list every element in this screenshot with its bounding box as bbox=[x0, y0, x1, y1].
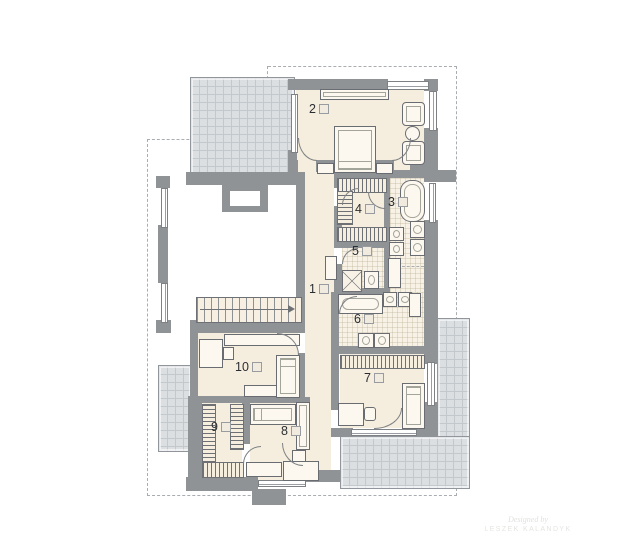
bed bbox=[276, 355, 300, 398]
wall bbox=[296, 172, 305, 300]
room-number: 9 bbox=[211, 421, 218, 434]
cabinet bbox=[388, 258, 401, 288]
room-area-marker bbox=[365, 204, 375, 214]
room-label-5: 5 bbox=[352, 245, 372, 258]
toilet-icon bbox=[389, 227, 404, 241]
nightstand bbox=[376, 163, 393, 174]
room-number: 4 bbox=[355, 203, 362, 216]
bidet-icon bbox=[389, 242, 404, 256]
room-area-marker bbox=[374, 373, 384, 383]
room-label-10: 10 bbox=[235, 361, 262, 374]
window bbox=[351, 429, 417, 436]
wall bbox=[186, 172, 298, 185]
wall bbox=[156, 176, 170, 188]
wall bbox=[288, 160, 298, 172]
balcony-door-window bbox=[291, 94, 298, 153]
room-label-6: 6 bbox=[354, 313, 374, 326]
window bbox=[258, 480, 306, 487]
wardrobe-shelving bbox=[230, 404, 244, 450]
terrace-top-left bbox=[190, 77, 295, 175]
stool bbox=[223, 347, 234, 360]
room-number: 3 bbox=[388, 196, 395, 209]
window bbox=[387, 81, 429, 90]
roof-outline-dashed bbox=[268, 66, 457, 67]
room-number: 1 bbox=[309, 283, 316, 296]
toilet-icon bbox=[383, 292, 397, 307]
room-area-marker bbox=[319, 284, 329, 294]
room-area-marker bbox=[291, 426, 301, 436]
shelf bbox=[244, 385, 277, 397]
washbasin bbox=[410, 221, 425, 238]
signature-line1: Designed by bbox=[468, 515, 588, 524]
washbasin bbox=[358, 333, 374, 348]
room-area-marker bbox=[221, 422, 231, 432]
wall bbox=[424, 220, 438, 354]
room-number: 10 bbox=[235, 361, 249, 374]
washbasin bbox=[410, 239, 425, 256]
room-number: 8 bbox=[281, 425, 288, 438]
chimney-flue bbox=[230, 191, 260, 206]
wall bbox=[424, 128, 438, 174]
window bbox=[429, 91, 437, 131]
stairs-direction-line bbox=[200, 309, 288, 310]
wall bbox=[331, 428, 353, 437]
washbasin bbox=[374, 333, 390, 348]
room-area-marker bbox=[398, 197, 408, 207]
room-label-4: 4 bbox=[355, 203, 375, 216]
room-number: 6 bbox=[354, 313, 361, 326]
shower bbox=[342, 270, 362, 292]
wall bbox=[424, 170, 456, 182]
bed bbox=[334, 126, 376, 173]
window bbox=[161, 188, 168, 228]
nightstand bbox=[317, 163, 334, 174]
bed bbox=[250, 404, 296, 425]
bed bbox=[402, 383, 425, 429]
room-label-1: 1 bbox=[309, 283, 329, 296]
room-label-7: 7 bbox=[364, 372, 384, 385]
room-area-marker bbox=[362, 246, 372, 256]
stairs bbox=[196, 297, 302, 323]
door-arc bbox=[243, 446, 261, 464]
toilet-icon bbox=[364, 271, 379, 289]
wardrobe-shelving bbox=[337, 227, 387, 242]
desk bbox=[199, 339, 223, 368]
side-table bbox=[246, 462, 282, 477]
cabinet bbox=[325, 256, 337, 280]
wardrobe-shelving bbox=[340, 355, 425, 369]
chimney bbox=[252, 489, 286, 505]
floor-plan-canvas: 1 2 3 4 5 6 7 8 9 10 Designed by LESZEK … bbox=[0, 0, 638, 556]
stairs-direction-arrow-icon bbox=[288, 305, 295, 313]
terrace-bottom-left bbox=[158, 365, 192, 452]
signature-line2: LESZEK KALANDYK bbox=[468, 526, 588, 533]
window bbox=[427, 362, 435, 406]
dresser bbox=[320, 89, 389, 100]
window-mullion bbox=[158, 225, 168, 283]
terrace-bottom-right bbox=[340, 436, 470, 489]
room-number: 2 bbox=[309, 103, 316, 116]
room-area-marker bbox=[252, 362, 262, 372]
level-change-dashed bbox=[402, 266, 424, 267]
room-label-9: 9 bbox=[211, 421, 231, 434]
cabinet bbox=[409, 293, 421, 317]
window bbox=[161, 283, 168, 323]
roof-outline-dashed bbox=[147, 495, 457, 496]
wall bbox=[186, 477, 258, 491]
wardrobe-shelving bbox=[202, 462, 244, 478]
room-number: 5 bbox=[352, 245, 359, 258]
hall-door-gap bbox=[298, 160, 316, 172]
wall bbox=[190, 333, 198, 396]
room-area-marker bbox=[364, 314, 374, 324]
room-label-2: 2 bbox=[309, 103, 329, 116]
room-label-8: 8 bbox=[281, 425, 301, 438]
armchair bbox=[402, 102, 425, 126]
designer-signature: Designed by LESZEK KALANDYK bbox=[468, 515, 588, 533]
room-number: 7 bbox=[364, 372, 371, 385]
desk bbox=[338, 403, 364, 426]
window bbox=[429, 183, 436, 223]
roof-outline-dashed bbox=[147, 139, 148, 496]
room-label-3: 3 bbox=[388, 196, 408, 209]
room-area-marker bbox=[319, 104, 329, 114]
